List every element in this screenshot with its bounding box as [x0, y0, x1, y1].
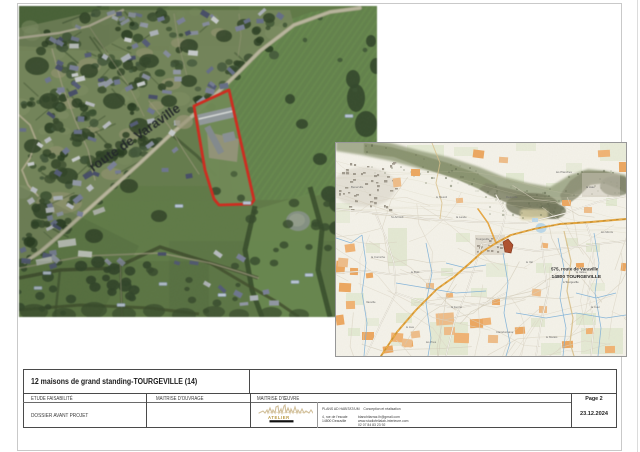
svg-text:ATELIER: ATELIER: [268, 415, 290, 420]
